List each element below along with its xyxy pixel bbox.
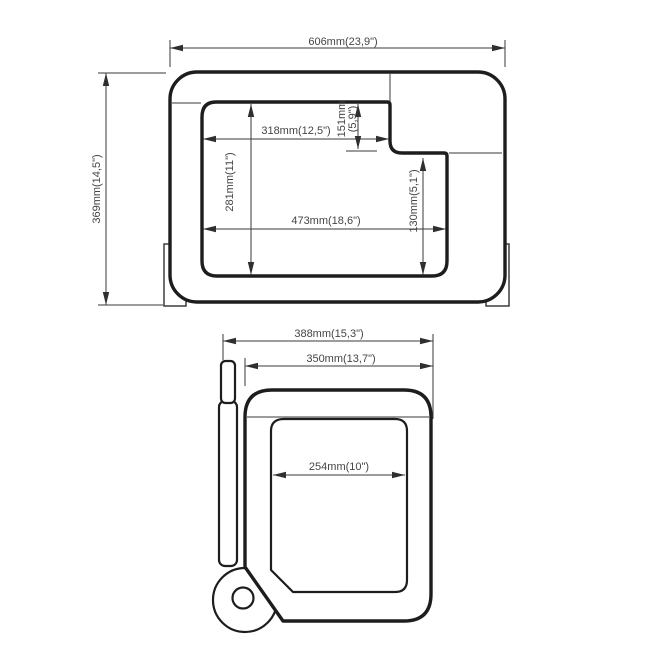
overall-width-label: 606mm(23,9") <box>308 36 377 48</box>
opening-right-height-label: 130mm(5,1") <box>408 169 420 232</box>
handle-upper-section <box>221 361 235 403</box>
technical-drawing-page: 606mm(23,9") 369mm(14,5") 318mm(12,5") 1… <box>0 0 660 660</box>
opening-depth-label: 254mm(10") <box>309 461 369 473</box>
opening-bottom-width-label: 473mm(18,6") <box>291 215 360 227</box>
dimension-body-depth: 350mm(13,7") <box>245 353 433 386</box>
notch-depth-label-in: (5,9") <box>347 106 359 133</box>
body-depth-label: 350mm(13,7") <box>306 353 375 365</box>
handle-lower-section <box>219 401 237 566</box>
dimensional-drawing: 606mm(23,9") 369mm(14,5") 318mm(12,5") 1… <box>0 0 660 660</box>
overall-height-label: 369mm(14,5") <box>91 154 103 223</box>
opening-top-width-label: 318mm(12,5") <box>261 125 330 137</box>
opening-height-label: 281mm(11") <box>224 152 236 211</box>
overall-depth-label: 388mm(15,3") <box>294 328 363 340</box>
side-view: 388mm(15,3") 350mm(13,7") 254mm(10") <box>213 328 433 632</box>
wheel-hub <box>233 588 254 609</box>
front-view: 606mm(23,9") 369mm(14,5") 318mm(12,5") 1… <box>91 36 509 306</box>
side-opening-outline <box>271 419 407 592</box>
dimension-overall-width: 606mm(23,9") <box>170 36 505 67</box>
dimension-overall-height: 369mm(14,5") <box>91 73 166 305</box>
